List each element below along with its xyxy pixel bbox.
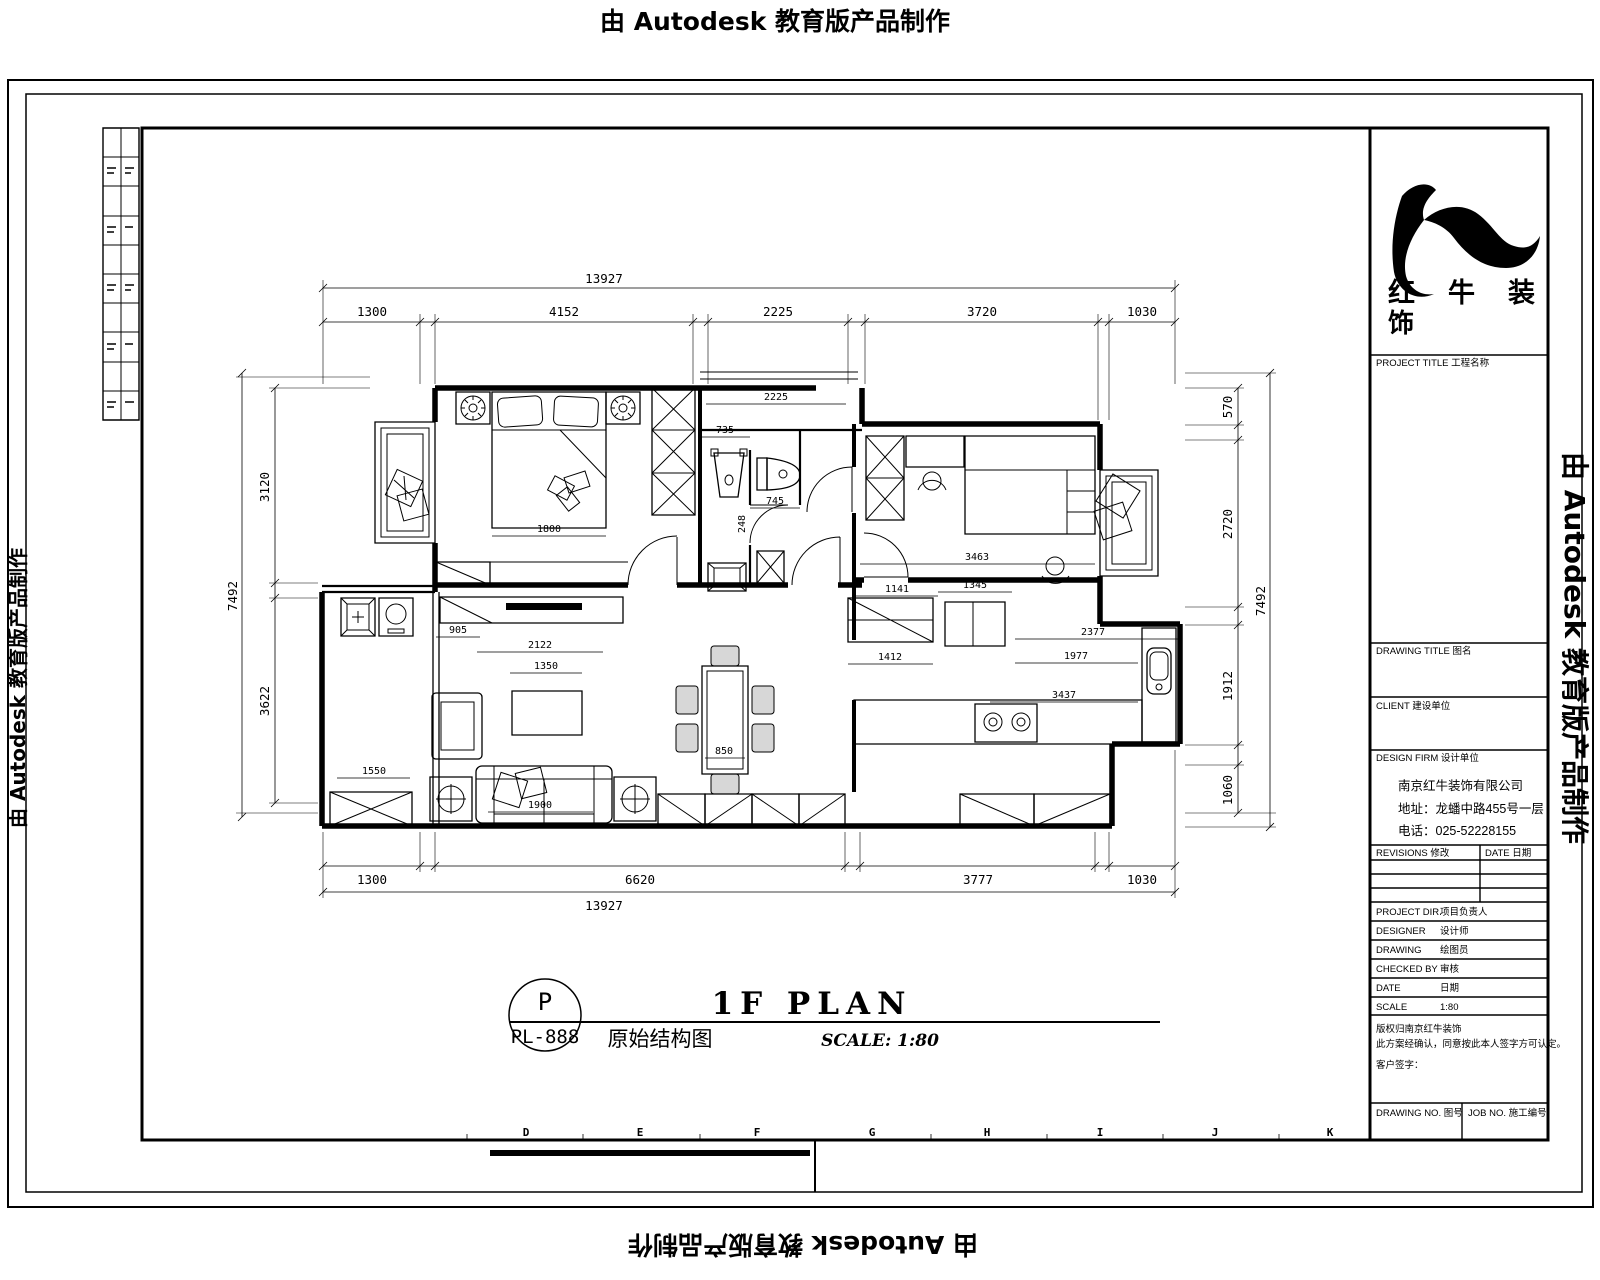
plant-icon (385, 469, 429, 521)
dim-label: 1300 (357, 872, 387, 887)
washing-machine (379, 598, 413, 636)
dim-label: 1060 (1220, 775, 1235, 805)
logo-text-line2: 饰 (1388, 308, 1414, 338)
copyright-note: 版权归南京红牛装饰 此方案经确认，同意按此本人签字方可认定。 客户签字： (1376, 1023, 1566, 1071)
client-sign-label: 客户签字： (1376, 1059, 1424, 1071)
dim-label: 1350 (534, 661, 558, 672)
company-address: 地址：龙蟠中路455号一层 (1398, 801, 1544, 816)
field-label: PROJECT DIR. (1376, 907, 1442, 918)
kitchen (848, 598, 1176, 744)
field-label: DATE (1376, 983, 1401, 994)
tv (506, 603, 582, 610)
dim-label: 3622 (257, 686, 272, 716)
company-logo: 红牛装 饰 (1388, 184, 1568, 338)
dim-label: 1977 (1064, 651, 1088, 662)
dim-label: 745 (766, 496, 784, 507)
bed2 (965, 436, 1095, 534)
sheet-border (8, 80, 1593, 1207)
field-value: 绘图员 (1440, 944, 1469, 956)
revisions-label: REVISIONS 修改 (1376, 847, 1450, 859)
decor-swirl-icon (461, 396, 485, 420)
project-title-label: PROJECT TITLE 工程名称 (1376, 357, 1490, 369)
dim-label: 1030 (1127, 304, 1157, 319)
grid-letter: E (637, 1126, 644, 1139)
wardrobe (866, 436, 904, 520)
dim-label: 2225 (763, 304, 793, 319)
grid-letter: K (1327, 1126, 1334, 1139)
dim-label: 3120 (257, 472, 272, 502)
coffee-table (512, 691, 582, 735)
plan-scale: SCALE: 1:80 (821, 1031, 939, 1051)
dim-label: 1141 (885, 584, 909, 595)
bay-cushions (1094, 474, 1140, 540)
dim-label: 1345 (963, 580, 987, 591)
dim-label: 1300 (357, 304, 387, 319)
callout-number: PL-888 (511, 1026, 580, 1048)
dim-label: 4152 (549, 304, 579, 319)
dim-label: 2122 (528, 640, 552, 651)
decor-swirl-icon (611, 396, 635, 420)
revisions-date-label: DATE 日期 (1485, 848, 1531, 859)
dining-set (676, 646, 774, 794)
kitchen-sink (1142, 628, 1176, 742)
pillow (497, 395, 543, 427)
dim-label: 570 (1220, 396, 1235, 419)
dim-label: 1800 (537, 524, 561, 535)
dim-label: 13927 (585, 271, 623, 286)
dim-label: 905 (449, 625, 467, 636)
plan-title-text: 1F PLAN (712, 986, 913, 1022)
dim-label: 13927 (585, 898, 623, 913)
living-room (430, 646, 774, 823)
pillow (553, 396, 598, 427)
laundry-basin (341, 598, 375, 636)
left-revision-strip (103, 128, 139, 420)
logo-text-line1: 红牛装 (1388, 277, 1568, 308)
note-line2: 此方案经确认，同意按此本人签字方可认定。 (1376, 1038, 1566, 1050)
field-label: SCALE (1376, 1002, 1407, 1013)
dim-label: 2225 (764, 392, 788, 403)
grid-letter: G (869, 1126, 876, 1139)
side-table (614, 777, 656, 821)
callout-letter: P (538, 988, 552, 1016)
grid-letter: D (523, 1126, 530, 1139)
entry-cabinet (848, 598, 933, 642)
desk (906, 436, 964, 467)
dim-label: 1030 (1127, 872, 1157, 887)
client-label: CLIENT 建设单位 (1376, 700, 1451, 712)
stove (975, 704, 1037, 742)
floor-plan-walls (322, 372, 1180, 826)
drawing-title-label: DRAWING TITLE 图名 (1376, 645, 1472, 657)
bathroom (708, 449, 800, 591)
counter (854, 700, 1142, 744)
shower-tray (757, 551, 784, 583)
field-value: 日期 (1440, 983, 1459, 994)
dim-label: 735 (716, 425, 734, 436)
grid-letter: I (1097, 1126, 1104, 1139)
dim-label: 1900 (528, 800, 552, 811)
grid-letter: H (984, 1126, 991, 1139)
dim-label: 1412 (878, 652, 902, 663)
tv-cabinet (440, 597, 623, 623)
grid-letter: J (1212, 1126, 1219, 1139)
dim-label: 3463 (965, 552, 989, 563)
dim-label: 850 (715, 746, 733, 757)
plan-title: P PL-888 1F PLAN 原始结构图 SCALE: 1:80 (509, 979, 1160, 1051)
desk-chair (918, 472, 946, 490)
company-name: 南京红牛装饰有限公司 (1398, 778, 1523, 793)
note-line1: 版权归南京红牛装饰 (1376, 1023, 1462, 1035)
field-value: 设计师 (1440, 925, 1469, 937)
dim-label: 3720 (967, 304, 997, 319)
design-firm-label: DESIGN FIRM 设计单位 (1376, 752, 1479, 764)
sofa (476, 766, 612, 823)
fridge (945, 602, 1005, 646)
wardrobe (652, 388, 695, 515)
dim-label: 2377 (1081, 627, 1105, 638)
dim-label: 248 (737, 515, 748, 533)
drawing-sheet: D E F G H I J K 红牛装 饰 PROJECT TITLE 工程名称… (0, 0, 1600, 1280)
throw-pillow (515, 767, 547, 799)
job-no-label: JOB NO. 施工编号 (1468, 1107, 1547, 1119)
field-value: 审核 (1440, 963, 1460, 975)
field-label: DESIGNER (1376, 926, 1426, 937)
field-value: 1:80 (1440, 1002, 1459, 1013)
field-value: 项目负责人 (1440, 906, 1488, 918)
grid-letters: D E F G H I J K (467, 1126, 1334, 1140)
drawing-no-label: DRAWING NO. 图号 (1376, 1108, 1463, 1119)
plan-subtitle: 原始结构图 (608, 1028, 713, 1051)
scale-bar (490, 1150, 810, 1156)
title-block: 红牛装 饰 PROJECT TITLE 工程名称 DRAWING TITLE 图… (1370, 184, 1568, 1140)
dim-label: 2720 (1220, 509, 1235, 539)
toilet (757, 458, 800, 490)
dim-label: 1550 (362, 766, 386, 777)
dim-label: 6620 (625, 872, 655, 887)
side-table (430, 777, 472, 821)
grid-letter: F (754, 1126, 761, 1139)
field-label: CHECKED BY (1376, 964, 1438, 975)
dim-label: 3437 (1052, 690, 1076, 701)
balcony (341, 598, 413, 636)
dim-label: 7492 (225, 581, 240, 611)
dim-label: 7492 (1253, 586, 1268, 616)
dim-label: 3777 (963, 872, 993, 887)
throw-pillow (492, 772, 527, 807)
dim-label: 1912 (1220, 671, 1235, 701)
field-label: DRAWING (1376, 945, 1422, 956)
company-phone: 电话：025-52228155 (1398, 824, 1516, 838)
